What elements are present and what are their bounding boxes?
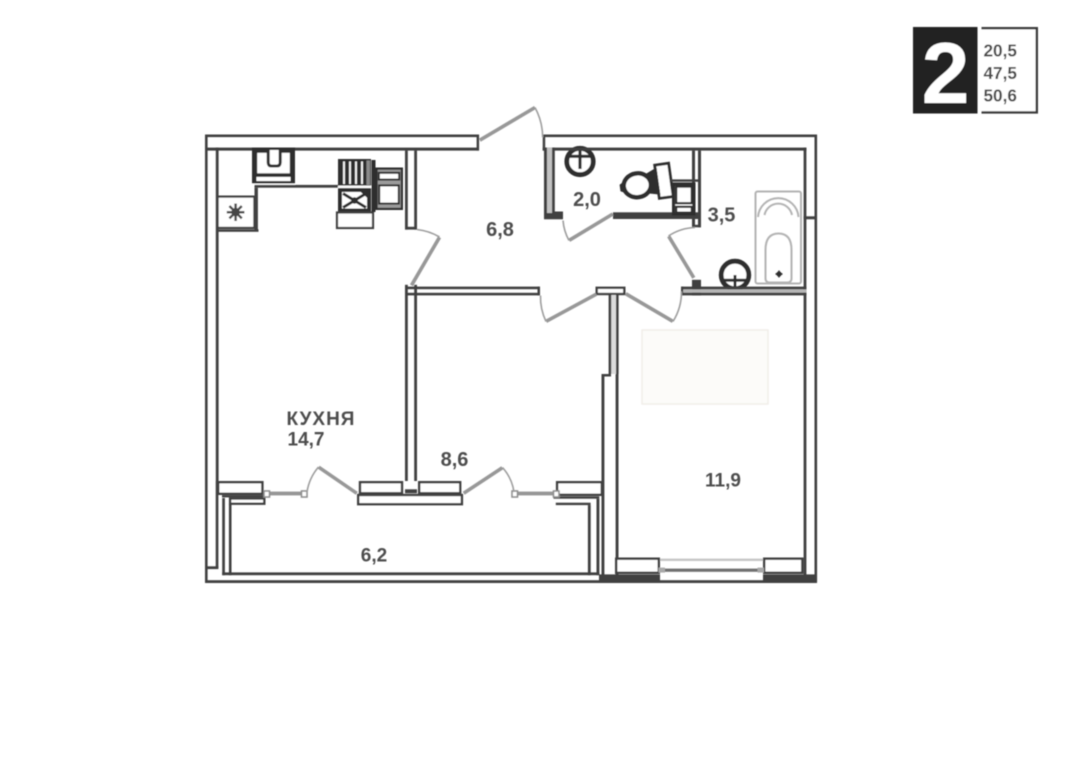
svg-text:3,5: 3,5: [708, 205, 736, 227]
svg-text:11,9: 11,9: [705, 470, 741, 491]
svg-text:8,6: 8,6: [441, 449, 469, 471]
svg-text:14,7: 14,7: [288, 430, 325, 451]
svg-text:50,6: 50,6: [984, 86, 1017, 106]
svg-text:47,5: 47,5: [984, 63, 1018, 83]
svg-text:2: 2: [922, 26, 970, 122]
svg-text:2,0: 2,0: [573, 189, 601, 211]
svg-text:6,8: 6,8: [486, 219, 514, 241]
svg-text:20,5: 20,5: [984, 41, 1018, 61]
svg-text:КУХНЯ: КУХНЯ: [287, 409, 356, 430]
svg-text:6,2: 6,2: [361, 546, 387, 567]
